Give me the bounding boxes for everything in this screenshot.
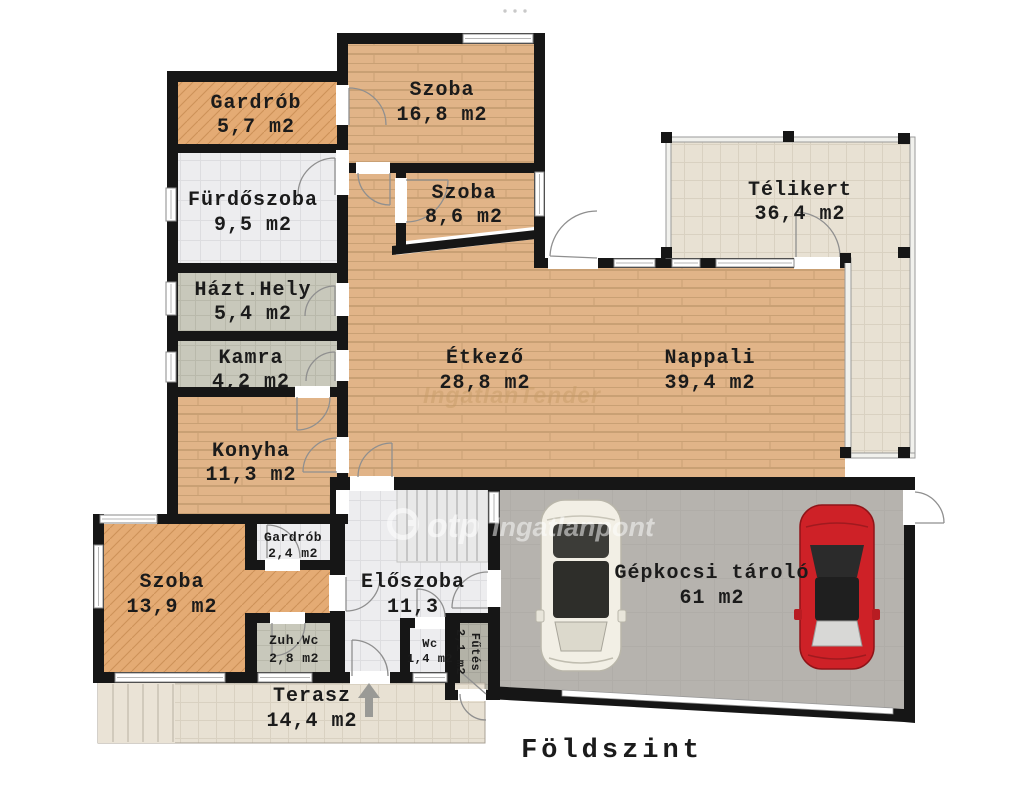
label-telikert-name: Télikert (748, 179, 852, 202)
label-gepkocsi-name: Gépkocsi tároló (614, 562, 809, 585)
label-szoba-also-area: 13,9 m2 (126, 596, 217, 619)
floor-etkezo-nappali (348, 268, 845, 477)
dots-decoration (503, 9, 526, 12)
label-szoba-kis-area: 8,6 m2 (425, 206, 503, 229)
label-szoba-nagy-name: Szoba (409, 79, 474, 102)
floor-telikert-side (851, 258, 915, 458)
label-futes-name: Fűtés (468, 633, 482, 672)
label-gardrob-also-area: 2,4 m2 (268, 546, 318, 561)
watermark-suffix: Ingatlanpont (492, 512, 655, 542)
watermark-brand: otp (427, 507, 480, 545)
label-eloszoba-name: Előszoba (361, 571, 465, 594)
floor-hall-strip (348, 173, 396, 268)
label-terasz-name: Terasz (273, 685, 351, 708)
floor-plan: IngatlanTender otp Ingatlanpont Gardrób … (0, 0, 1024, 785)
label-terasz-area: 14,4 m2 (266, 710, 357, 733)
label-futes: Fűtés 2,1 m2 (453, 629, 482, 675)
label-szoba-kis-name: Szoba (431, 182, 496, 205)
label-kamra-area: 4,2 m2 (212, 371, 290, 394)
label-gardrob-also-name: Gardrób (264, 530, 322, 545)
label-hazt-hely-name: Házt.Hely (194, 279, 311, 302)
label-zuh-wc-name: Zuh.Wc (269, 633, 319, 648)
label-furdoszoba-name: Fürdőszoba (188, 189, 318, 212)
label-kamra-name: Kamra (218, 347, 283, 370)
label-hazt-hely-area: 5,4 m2 (214, 303, 292, 326)
label-nappali-name: Nappali (664, 347, 755, 370)
plan-title: Földszint (521, 736, 703, 766)
label-etkezo-name: Étkező (446, 346, 524, 370)
label-telikert-area: 36,4 m2 (754, 203, 845, 226)
floor-plan-page: IngatlanTender otp Ingatlanpont Gardrób … (0, 0, 1024, 785)
red-car-icon (794, 505, 880, 669)
label-szoba-also-name: Szoba (139, 571, 204, 594)
label-eloszoba-area: 11,3 (387, 596, 439, 619)
label-gardrob-felso-area: 5,7 m2 (217, 116, 295, 139)
label-zuh-wc-area: 2,8 m2 (269, 651, 319, 666)
label-etkezo-area: 28,8 m2 (439, 372, 530, 395)
floor-passage (245, 570, 337, 613)
label-furdoszoba-area: 9,5 m2 (214, 214, 292, 237)
label-wc-name: Wc (422, 637, 437, 651)
label-konyha-area: 11,3 m2 (205, 464, 296, 487)
label-futes-area: 2,1 m2 (453, 629, 467, 675)
label-nappali-area: 39,4 m2 (664, 372, 755, 395)
terasz-steps (98, 683, 175, 743)
label-gepkocsi-area: 61 m2 (679, 587, 744, 610)
label-szoba-nagy-area: 16,8 m2 (396, 104, 487, 127)
label-konyha-name: Konyha (212, 440, 290, 463)
label-gardrob-felso-name: Gardrób (210, 92, 301, 115)
label-wc-area: 1,4 m2 (407, 652, 453, 666)
